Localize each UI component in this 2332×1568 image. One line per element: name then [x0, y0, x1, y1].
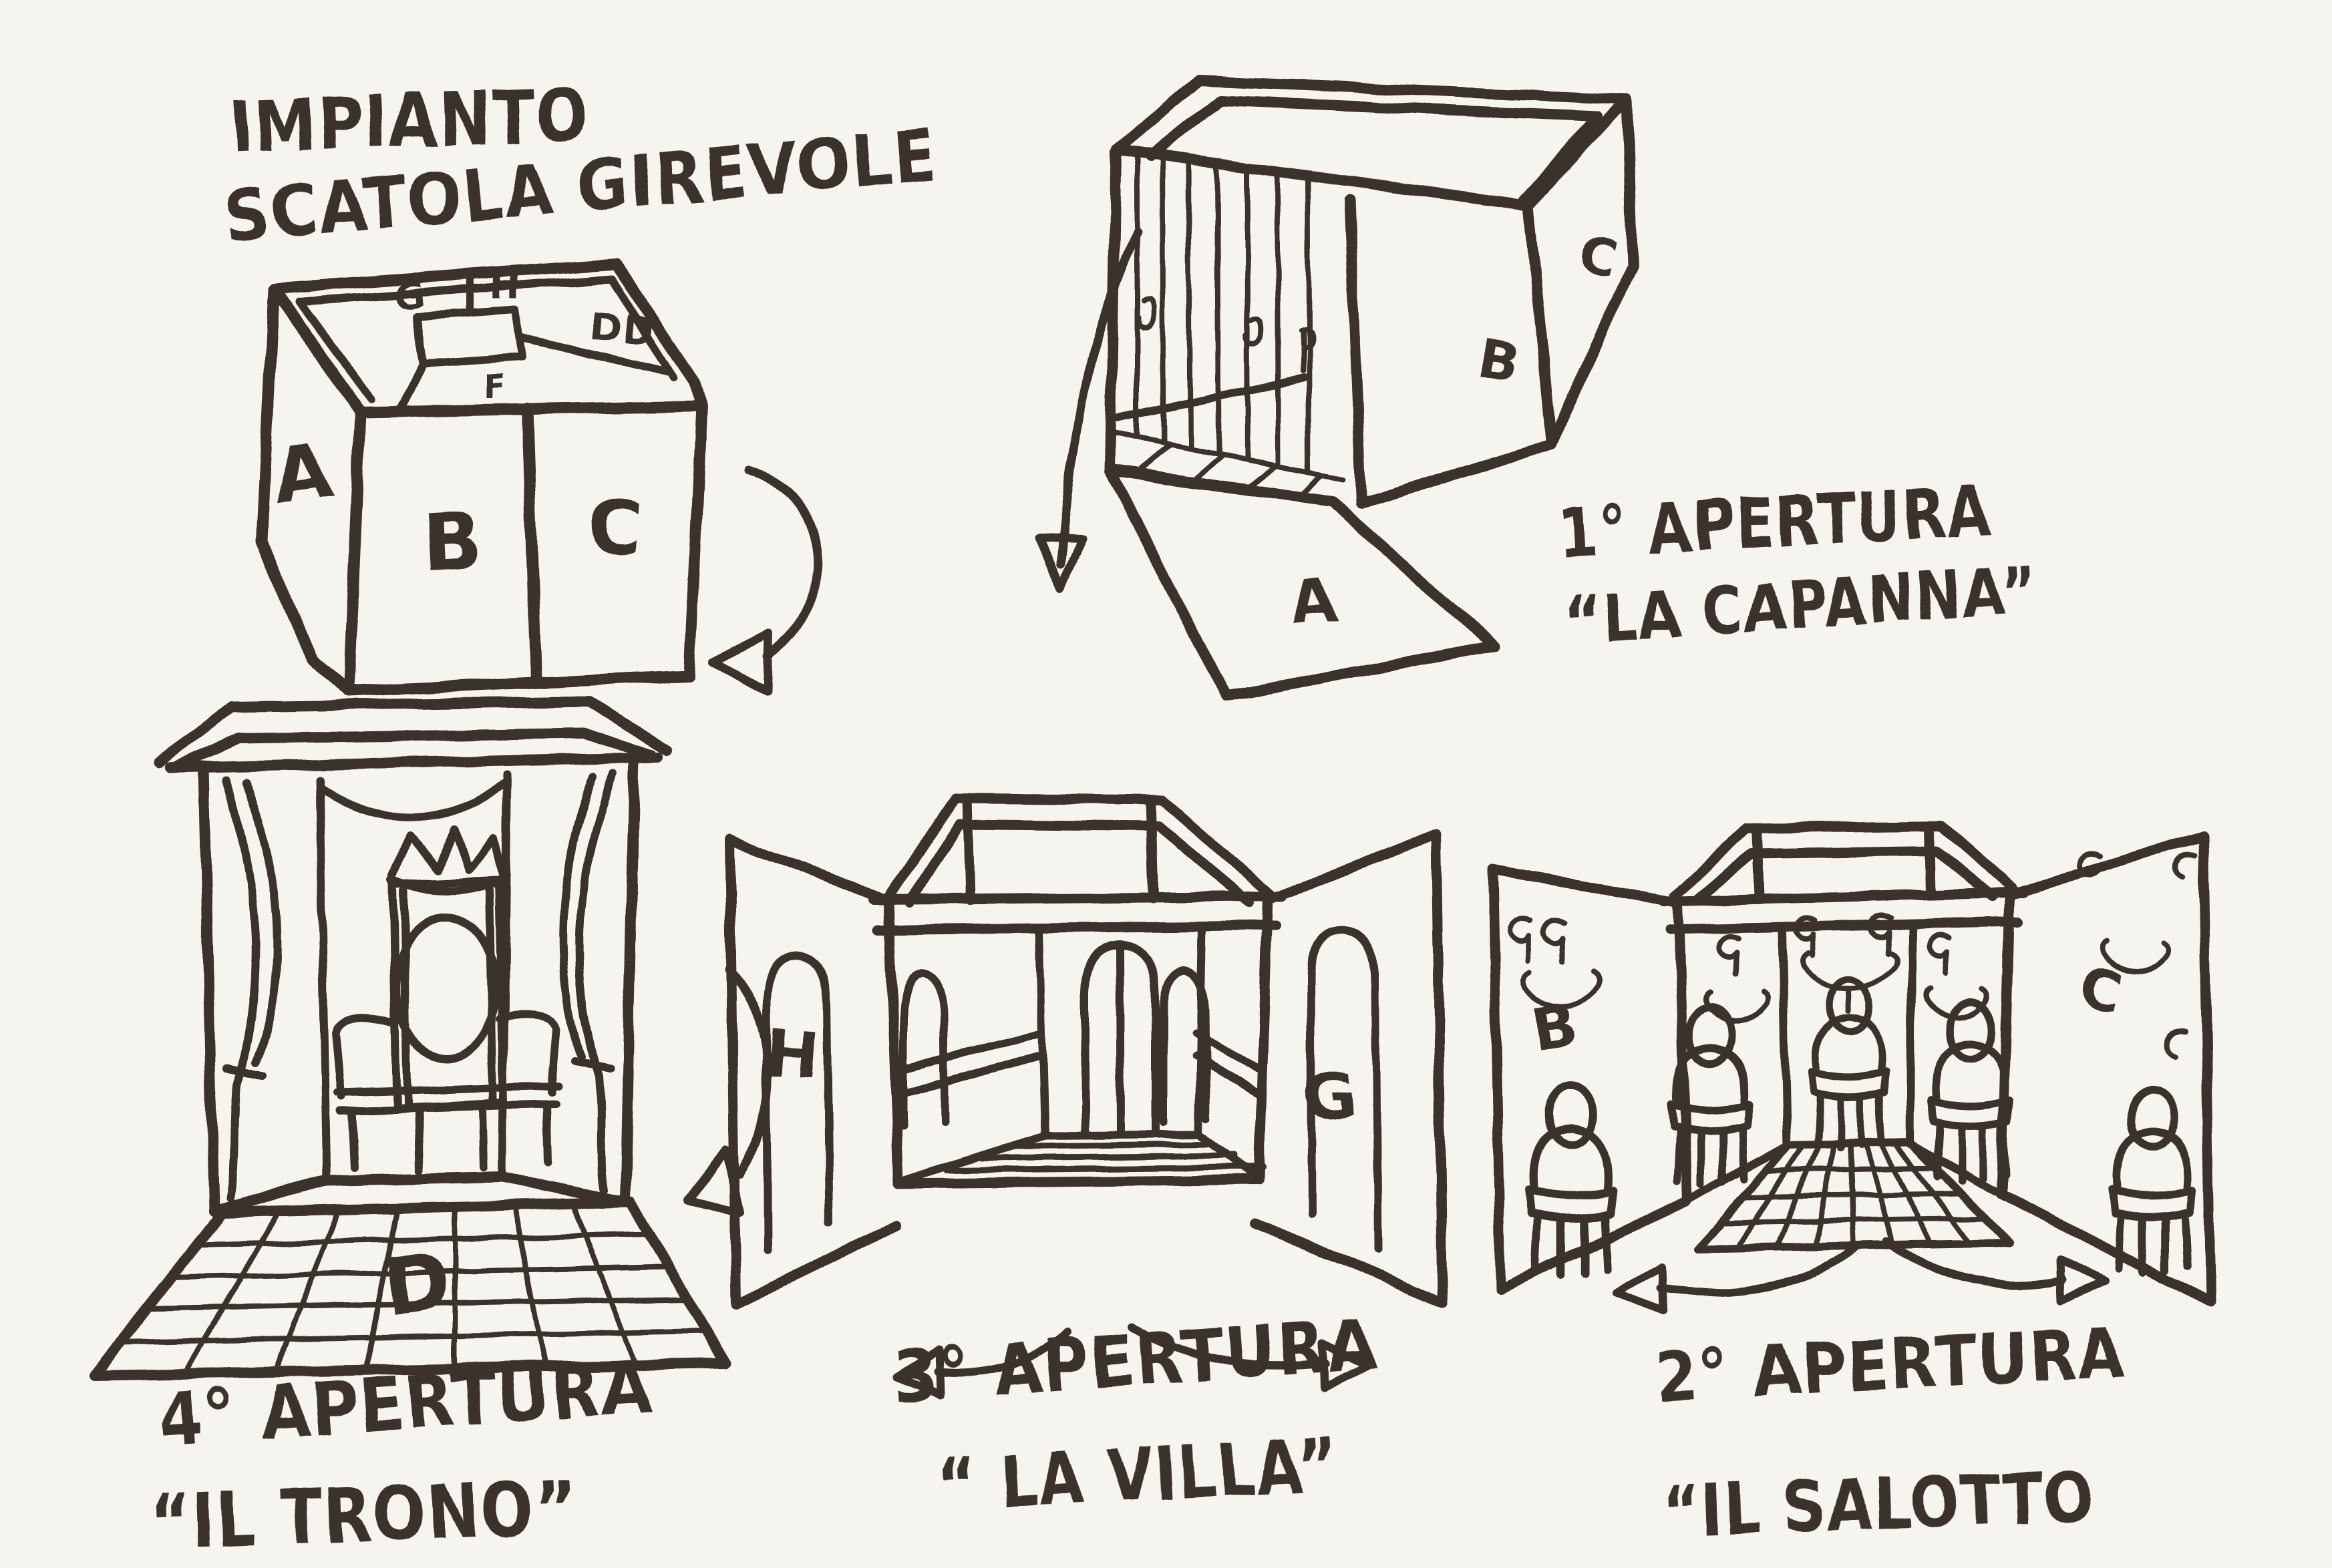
closed-box-label-c: C	[584, 482, 646, 573]
closed-box-label-b: B	[420, 494, 486, 590]
trono-label-d: D	[379, 1233, 458, 1335]
capanna-label-a: A	[1286, 564, 1342, 640]
closed-box-label-dd: DD	[588, 305, 657, 355]
salotto-label-b: B	[1528, 990, 1583, 1064]
trono-caption-name: “IL TRONO”	[148, 1465, 578, 1565]
sketch-canvas: IMPIANTO SCATOLA GIREVOLE A B C G H DD F…	[0, 0, 2332, 1568]
villa-label-g: G	[1300, 1058, 1361, 1137]
closed-box-label-a: A	[267, 425, 340, 522]
closed-box-label-f: F	[484, 368, 508, 407]
salotto-caption-name: “IL SALOTTO	[1660, 1456, 2097, 1553]
closed-box-label-g: G	[393, 274, 429, 319]
villa-label-h: H	[764, 1016, 823, 1093]
closed-box-label-h: H	[490, 264, 522, 308]
